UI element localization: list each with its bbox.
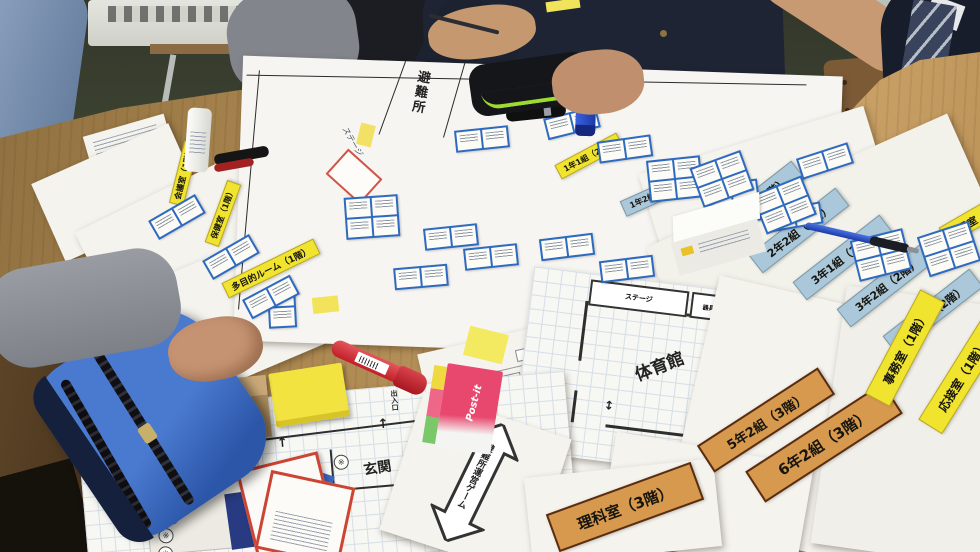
evacuee-card — [650, 180, 676, 200]
postit-flag-box: Post-it — [422, 361, 504, 455]
evacuee-card — [798, 153, 826, 178]
evacuee-card — [373, 216, 398, 236]
evacuee-card — [823, 145, 851, 170]
blue-pen-tip — [906, 246, 919, 254]
evacuee-card-group — [539, 233, 595, 261]
glue-label — [189, 131, 206, 154]
evacuee-card-group — [202, 234, 260, 280]
evacuee-card — [372, 196, 397, 216]
evacuee-card — [456, 130, 482, 150]
glue-stick-cap — [575, 125, 595, 137]
evacuee-card — [541, 238, 567, 259]
evacuee-card-group — [148, 194, 206, 240]
evacuee-card-group — [599, 255, 655, 283]
photo-scene: 避難所 ステージ ステージ 器具庫 体育館 ↕ ↕ — [0, 0, 980, 552]
evacuee-card — [465, 248, 491, 268]
evacuee-card — [347, 218, 372, 238]
evacuee-card — [425, 228, 451, 248]
evacuee-card-group — [344, 194, 401, 240]
evacuee-card-group — [454, 125, 510, 153]
evacuee-card — [627, 257, 653, 278]
evacuee-card — [601, 260, 627, 281]
evacuee-card-group — [463, 243, 519, 271]
white-box-logo — [680, 245, 694, 256]
evacuee-card — [857, 256, 885, 279]
evacuee-card — [625, 137, 651, 158]
evacuee-card-group — [393, 264, 449, 291]
evacuee-card-group — [796, 142, 854, 180]
card-fine-print — [270, 511, 333, 552]
evacuee-card — [491, 245, 517, 265]
evacuee-card — [395, 268, 420, 288]
evacuee-card — [421, 266, 446, 286]
evacuee-card-group — [597, 134, 654, 163]
evacuee-card — [482, 127, 508, 147]
evacuee-card — [546, 115, 574, 138]
postit-front: Post-it — [435, 363, 503, 455]
evacuee-card — [346, 198, 371, 218]
sticky-note-pad — [268, 363, 350, 428]
evacuee-card — [270, 307, 295, 326]
glue-stick-bottle — [184, 107, 212, 173]
evacuee-card — [599, 140, 625, 161]
postit-brand: Post-it — [464, 384, 484, 423]
evacuee-card — [451, 225, 477, 245]
evacuee-card-group — [423, 223, 479, 251]
white-box-text — [698, 229, 751, 253]
evacuee-card — [567, 235, 593, 256]
evacuee-card — [648, 160, 674, 180]
evacuee-card-group — [917, 221, 980, 278]
